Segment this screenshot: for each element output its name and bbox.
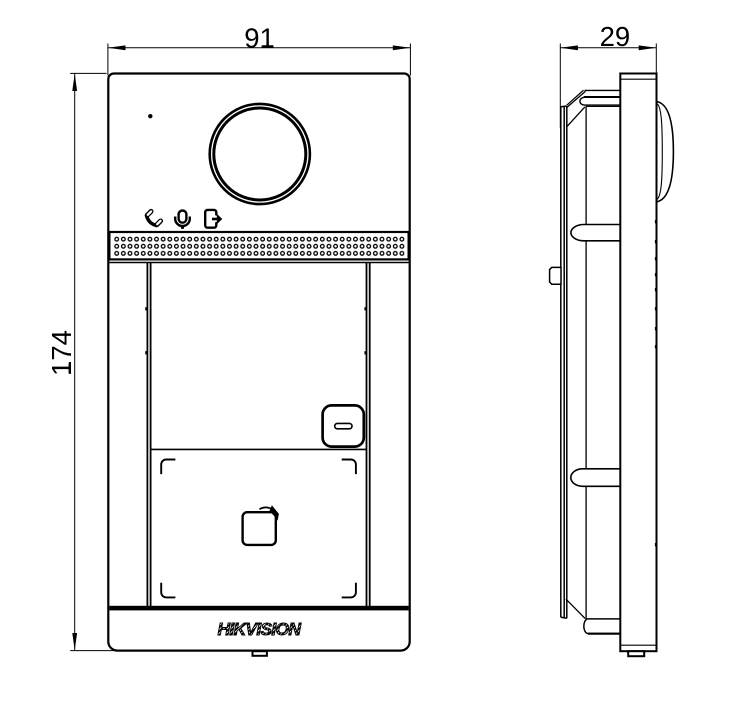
svg-text:HIKVISION: HIKVISION — [218, 619, 302, 639]
svg-text:91: 91 — [244, 23, 275, 54]
svg-text:174: 174 — [46, 330, 77, 376]
svg-text:29: 29 — [600, 21, 631, 52]
